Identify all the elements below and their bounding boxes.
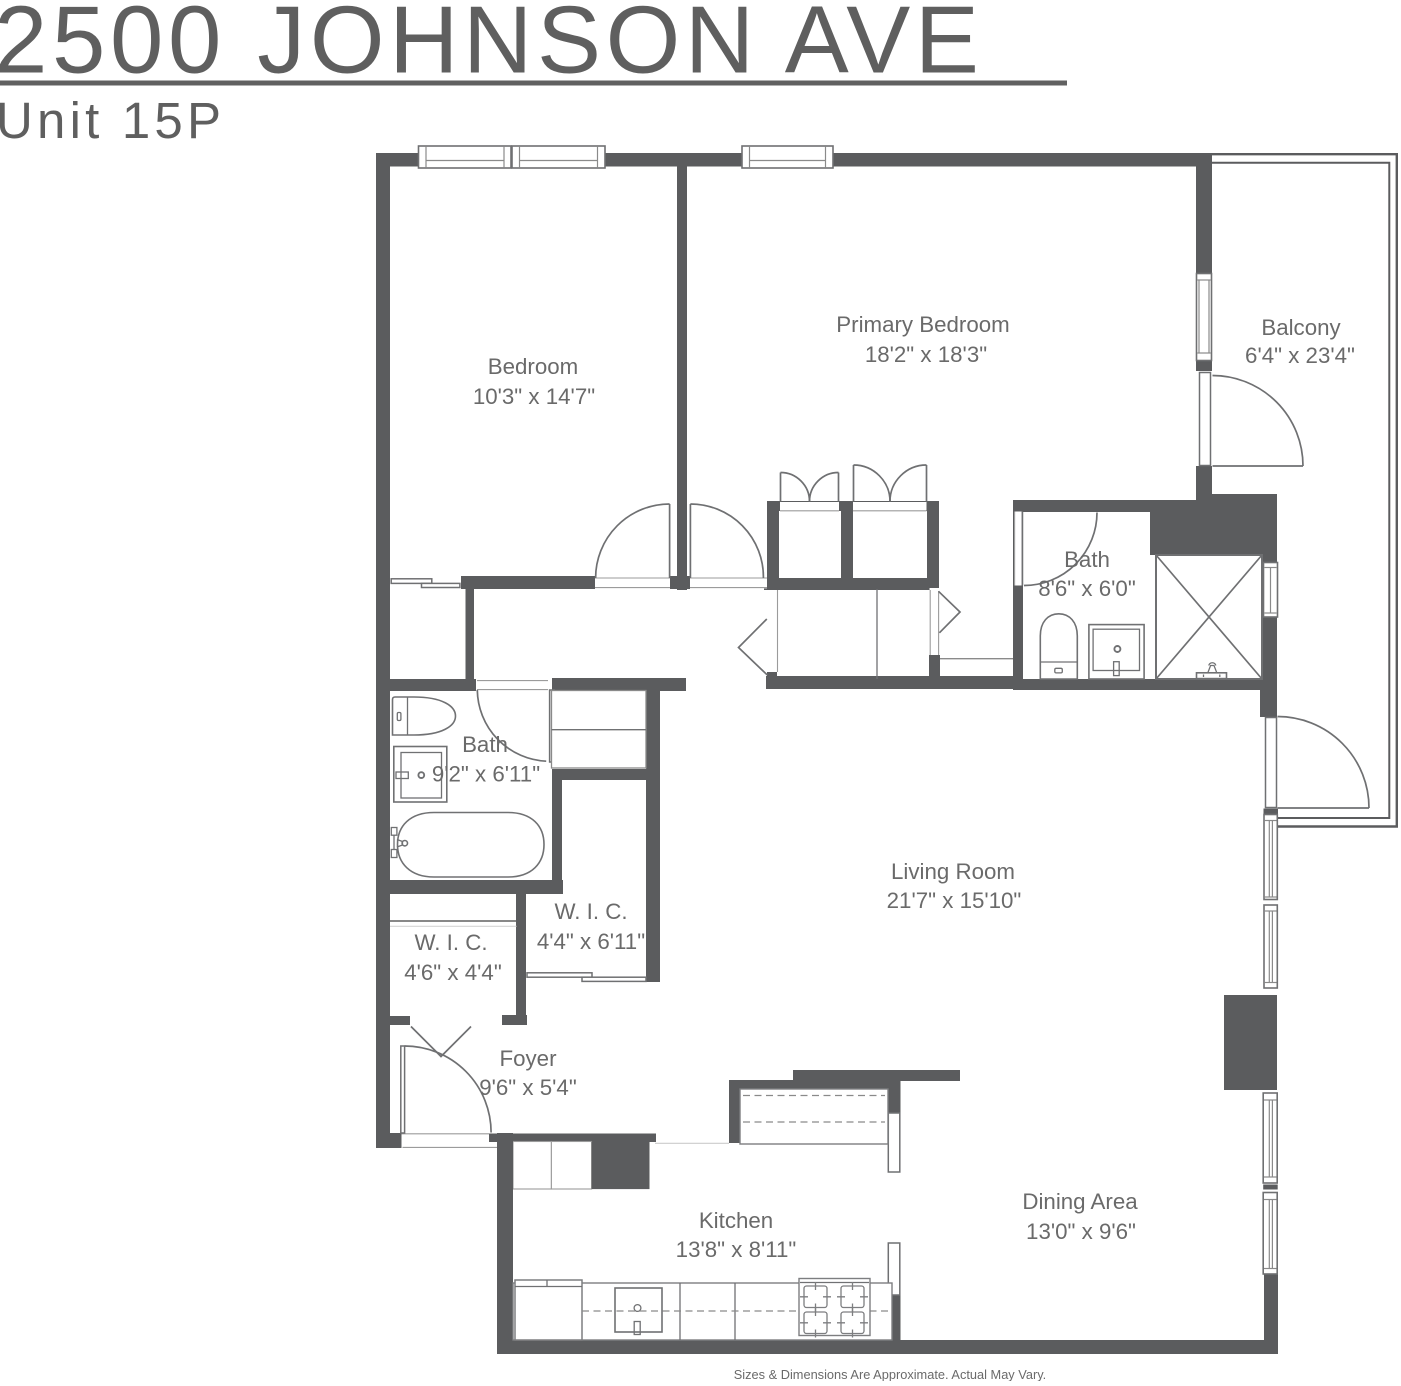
svg-text:Bath: Bath — [1064, 547, 1110, 572]
svg-text:W. I. C.: W. I. C. — [554, 899, 627, 924]
svg-text:9'6" x 5'4": 9'6" x 5'4" — [479, 1075, 576, 1100]
svg-text:10'3" x 14'7": 10'3" x 14'7" — [473, 384, 595, 409]
svg-text:4'4" x 6'11": 4'4" x 6'11" — [537, 929, 645, 954]
svg-text:Dining Area: Dining Area — [1022, 1189, 1138, 1214]
svg-text:18'2" x 18'3": 18'2" x 18'3" — [865, 342, 987, 367]
svg-text:4'6" x 4'4": 4'6" x 4'4" — [404, 960, 501, 985]
svg-text:8'6" x 6'0": 8'6" x 6'0" — [1038, 576, 1135, 601]
svg-text:W. I. C.: W. I. C. — [414, 930, 487, 955]
svg-text:Foyer: Foyer — [500, 1046, 558, 1071]
svg-text:Bedroom: Bedroom — [488, 354, 578, 379]
svg-text:6'4" x 23'4": 6'4" x 23'4" — [1245, 343, 1355, 368]
svg-text:13'0" x 9'6": 13'0" x 9'6" — [1026, 1219, 1136, 1244]
svg-text:Sizes & Dimensions Are Approxi: Sizes & Dimensions Are Approximate. Actu… — [734, 1367, 1046, 1381]
svg-text:Kitchen: Kitchen — [699, 1208, 773, 1233]
svg-text:Bath: Bath — [462, 732, 508, 757]
svg-text:Primary Bedroom: Primary Bedroom — [836, 312, 1009, 337]
svg-text:21'7" x 15'10": 21'7" x 15'10" — [887, 888, 1022, 913]
svg-text:2500 JOHNSON AVE: 2500 JOHNSON AVE — [0, 0, 984, 94]
svg-text:13'8" x 8'11": 13'8" x 8'11" — [676, 1237, 797, 1262]
svg-text:9'2" x 6'11": 9'2" x 6'11" — [432, 762, 540, 787]
svg-text:Unit 15P: Unit 15P — [0, 92, 225, 149]
svg-text:Balcony: Balcony — [1261, 315, 1341, 340]
svg-text:Living Room: Living Room — [891, 859, 1015, 884]
